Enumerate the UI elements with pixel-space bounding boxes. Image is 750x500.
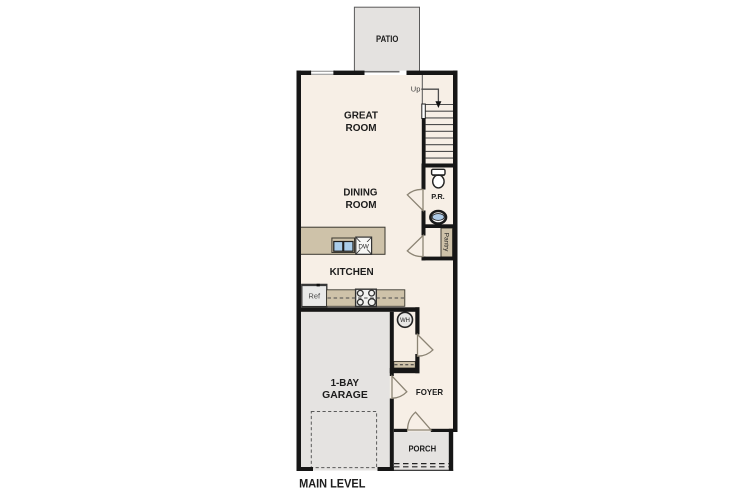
svg-text:KITCHEN: KITCHEN (330, 267, 374, 278)
svg-text:DINING: DINING (343, 188, 377, 199)
svg-text:PORCH: PORCH (408, 443, 436, 453)
svg-text:Pantry: Pantry (443, 233, 450, 252)
svg-text:P.R.: P.R. (431, 192, 445, 201)
svg-text:PATIO: PATIO (376, 34, 399, 44)
svg-text:Ref: Ref (308, 291, 321, 300)
svg-text:ROOM: ROOM (346, 123, 377, 134)
svg-text:WH: WH (400, 317, 410, 324)
svg-text:Up: Up (411, 84, 421, 93)
svg-text:MAIN LEVEL: MAIN LEVEL (299, 476, 366, 490)
svg-text:1-BAY: 1-BAY (331, 378, 360, 389)
svg-text:GARAGE: GARAGE (322, 390, 368, 401)
svg-text:GREAT: GREAT (344, 110, 378, 121)
svg-text:DW: DW (358, 243, 369, 250)
svg-text:ROOM: ROOM (346, 200, 377, 211)
svg-text:FOYER: FOYER (416, 387, 443, 397)
